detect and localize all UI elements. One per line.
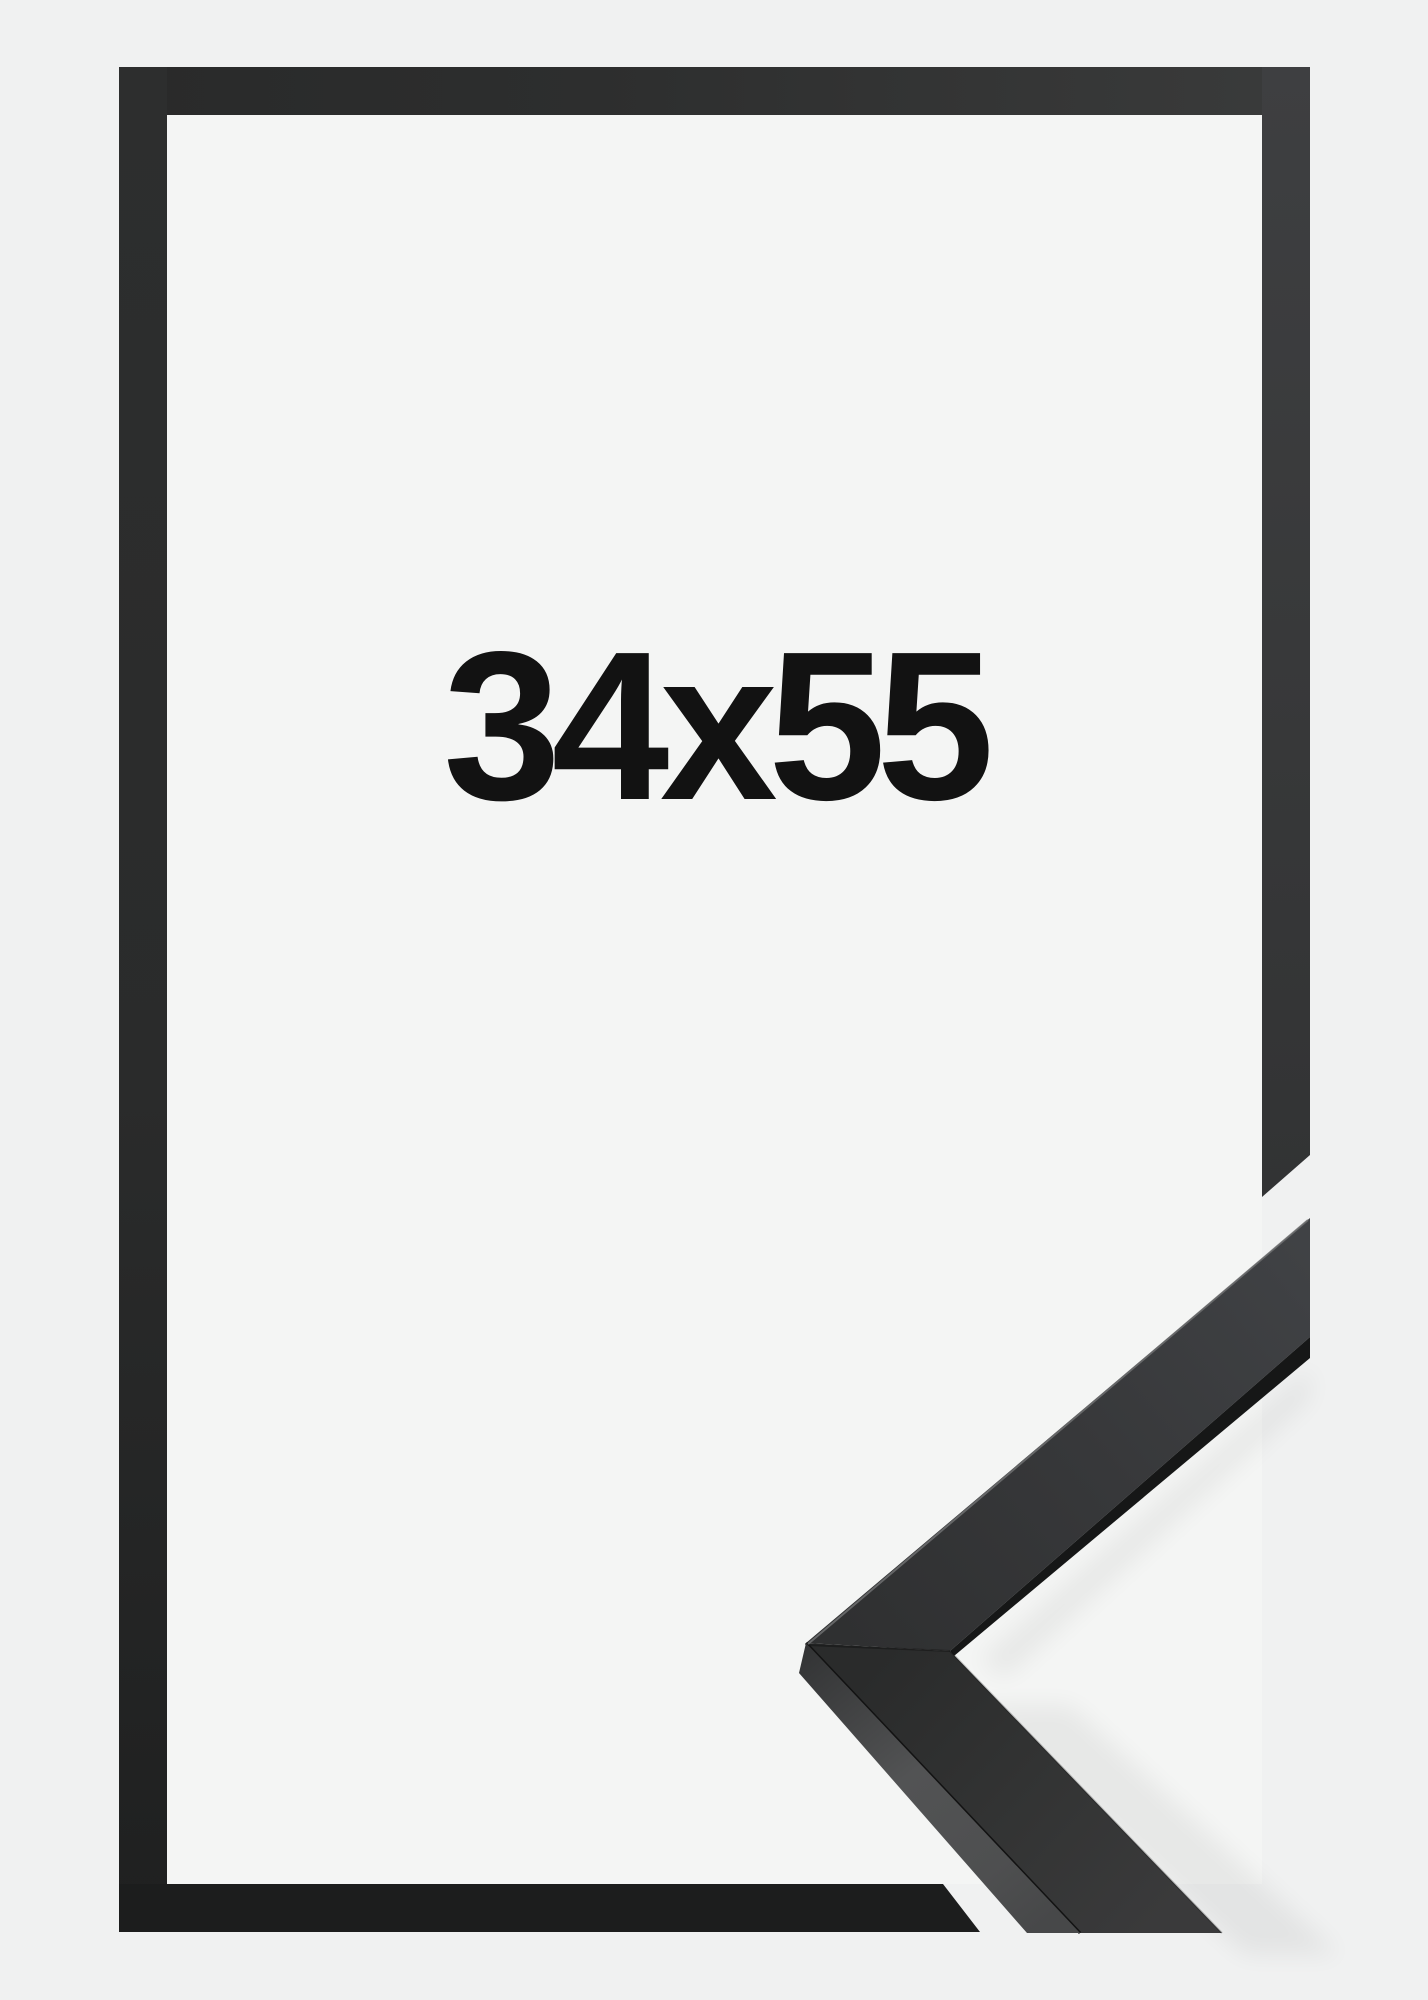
frame-inner-area [167, 115, 1262, 1884]
frame-bottom-bar-broken [119, 1884, 980, 1932]
frame-size-product-image: 34x55 [0, 0, 1428, 2000]
frame-top-bar [119, 67, 1310, 115]
frame-left-bar [119, 67, 167, 1932]
size-label: 34x55 [0, 620, 1428, 832]
